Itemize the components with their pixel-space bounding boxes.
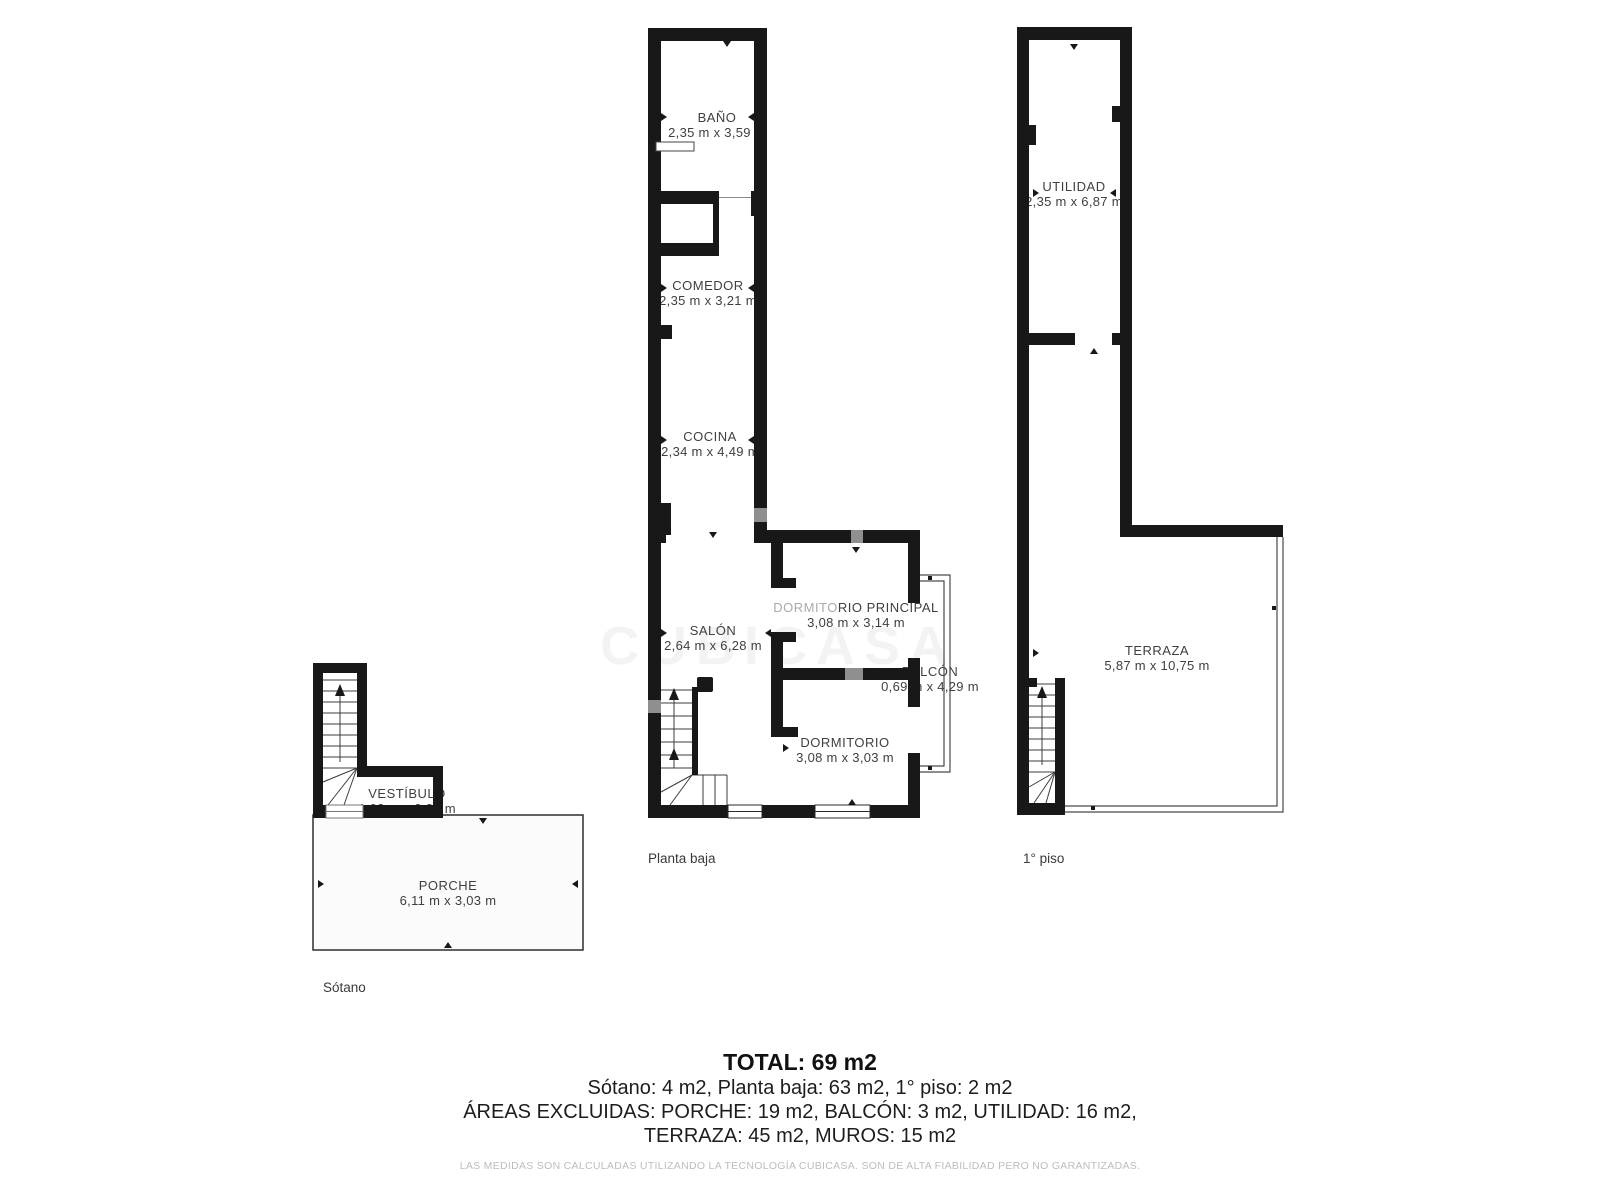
room-label-dormitorio: DORMITORIO 3,08 m x 3,03 m [796, 735, 894, 765]
floor-label-primer-piso: 1° piso [1023, 851, 1064, 866]
room-label-comedor: COMEDOR 2,35 m x 3,21 m [659, 278, 757, 308]
room-label-utilidad: UTILIDAD 2,35 m x 6,87 m [1025, 179, 1123, 209]
room-label-porche: PORCHE 6,11 m x 3,03 m [400, 878, 497, 908]
excluded-areas-1: ÁREAS EXCLUIDAS: PORCHE: 19 m2, BALCÓN: … [0, 1100, 1600, 1124]
floor-label-sotano: Sótano [323, 980, 366, 995]
floor-label-planta-baja: Planta baja [648, 851, 716, 866]
room-label-terraza: TERRAZA 5,87 m x 10,75 m [1104, 643, 1209, 673]
floor-areas: Sótano: 4 m2, Planta baja: 63 m2, 1° pis… [0, 1076, 1600, 1100]
room-label-bano: BAÑO 2,35 m x 3,59 m [668, 110, 766, 140]
excluded-areas-2: TERRAZA: 45 m2, MUROS: 15 m2 [0, 1124, 1600, 1148]
area-summary: TOTAL: 69 m2 Sótano: 4 m2, Planta baja: … [0, 1048, 1600, 1148]
measurement-disclaimer: LAS MEDIDAS SON CALCULADAS UTILIZANDO LA… [0, 1160, 1600, 1172]
room-label-vestibulo: VESTÍBULO 1,03 m x 0,81 m [358, 786, 456, 816]
room-labels-layer: BAÑO 2,35 m x 3,59 m COMEDOR 2,35 m x 3,… [0, 0, 1600, 1200]
floorplan-page: CUBICASA [0, 0, 1600, 1200]
total-area: TOTAL: 69 m2 [0, 1048, 1600, 1076]
room-label-dormitorio-principal: DORMITORIO PRINCIPAL 3,08 m x 3,14 m [773, 600, 939, 630]
room-label-balcon: BALCÓN 0,69 m x 4,29 m [881, 664, 979, 694]
room-label-cocina: COCINA 2,34 m x 4,49 m [661, 429, 759, 459]
room-label-salon: SALÓN 2,64 m x 6,28 m [664, 623, 762, 653]
